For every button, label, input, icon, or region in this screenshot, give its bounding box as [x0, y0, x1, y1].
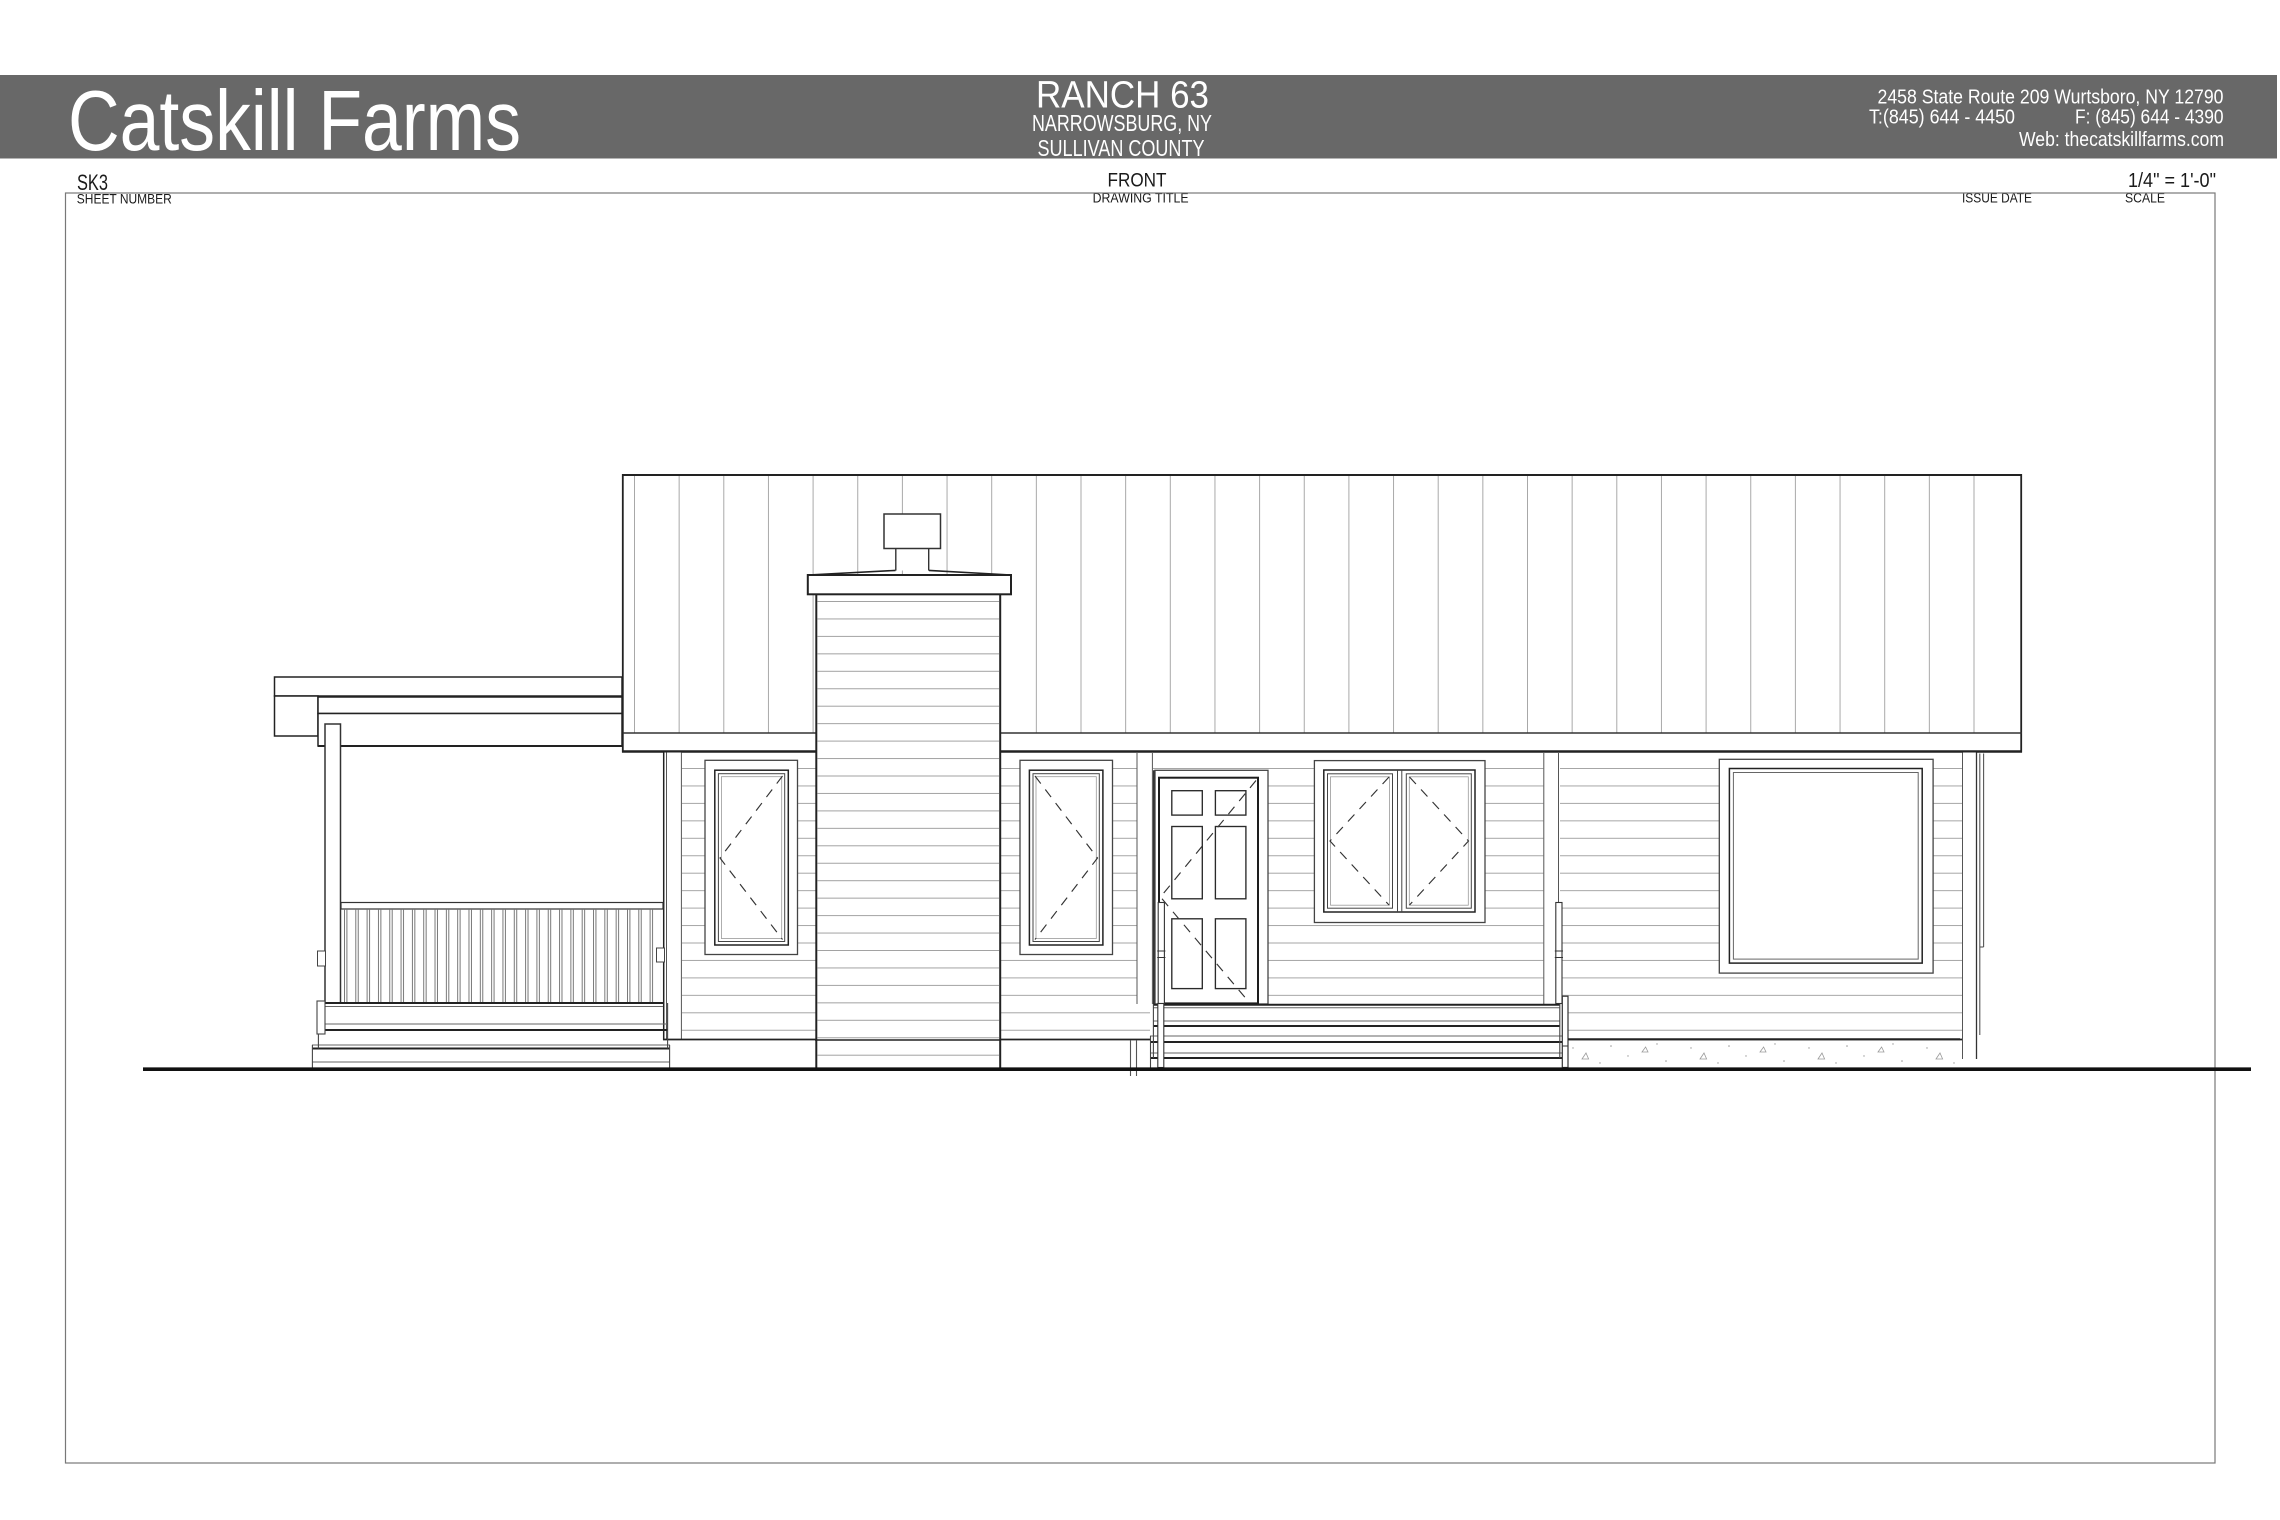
svg-text:NARROWSBURG, NY: NARROWSBURG, NY	[1032, 110, 1212, 136]
svg-text:SULLIVAN COUNTY: SULLIVAN COUNTY	[1038, 135, 1205, 161]
svg-text:Web: thecatskillfarms.com: Web: thecatskillfarms.com	[2019, 128, 2224, 151]
svg-text:T:(845) 644 - 4450: T:(845) 644 - 4450	[1869, 106, 2015, 129]
svg-text:DRAWING TITLE: DRAWING TITLE	[1093, 189, 1189, 205]
svg-text:SCALE: SCALE	[2125, 189, 2165, 205]
svg-text:Catskill Farms: Catskill Farms	[68, 74, 521, 169]
svg-text:F: (845) 644 - 4390: F: (845) 644 - 4390	[2075, 106, 2224, 129]
svg-text:ISSUE DATE: ISSUE DATE	[1962, 189, 2032, 205]
